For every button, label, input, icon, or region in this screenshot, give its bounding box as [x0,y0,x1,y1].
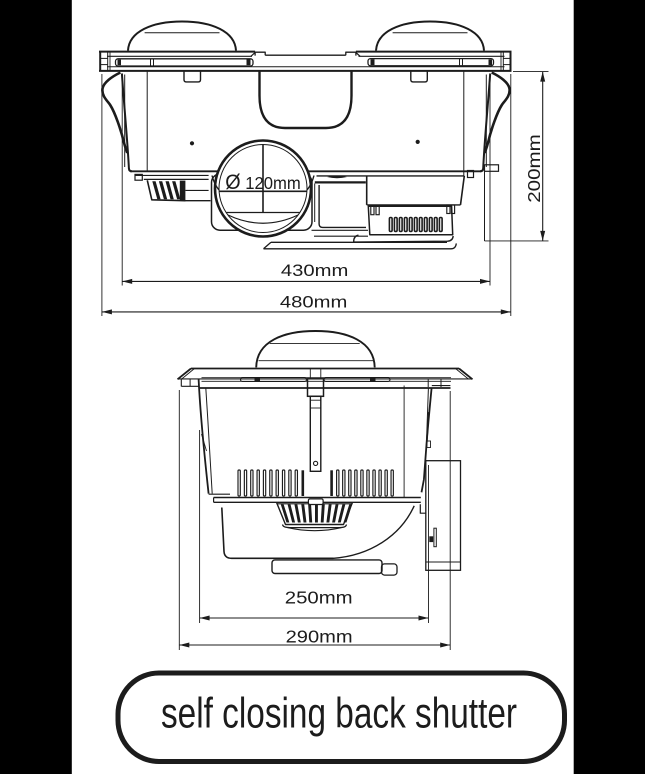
svg-text:250mm: 250mm [285,588,353,608]
svg-text:Ø 120mm: Ø 120mm [225,171,301,194]
svg-text:430mm: 430mm [281,261,349,280]
svg-text:self closing back shutter: self closing back shutter [161,690,517,738]
svg-text:480mm: 480mm [280,293,348,312]
svg-text:290mm: 290mm [286,627,353,647]
svg-text:200mm: 200mm [524,134,544,203]
